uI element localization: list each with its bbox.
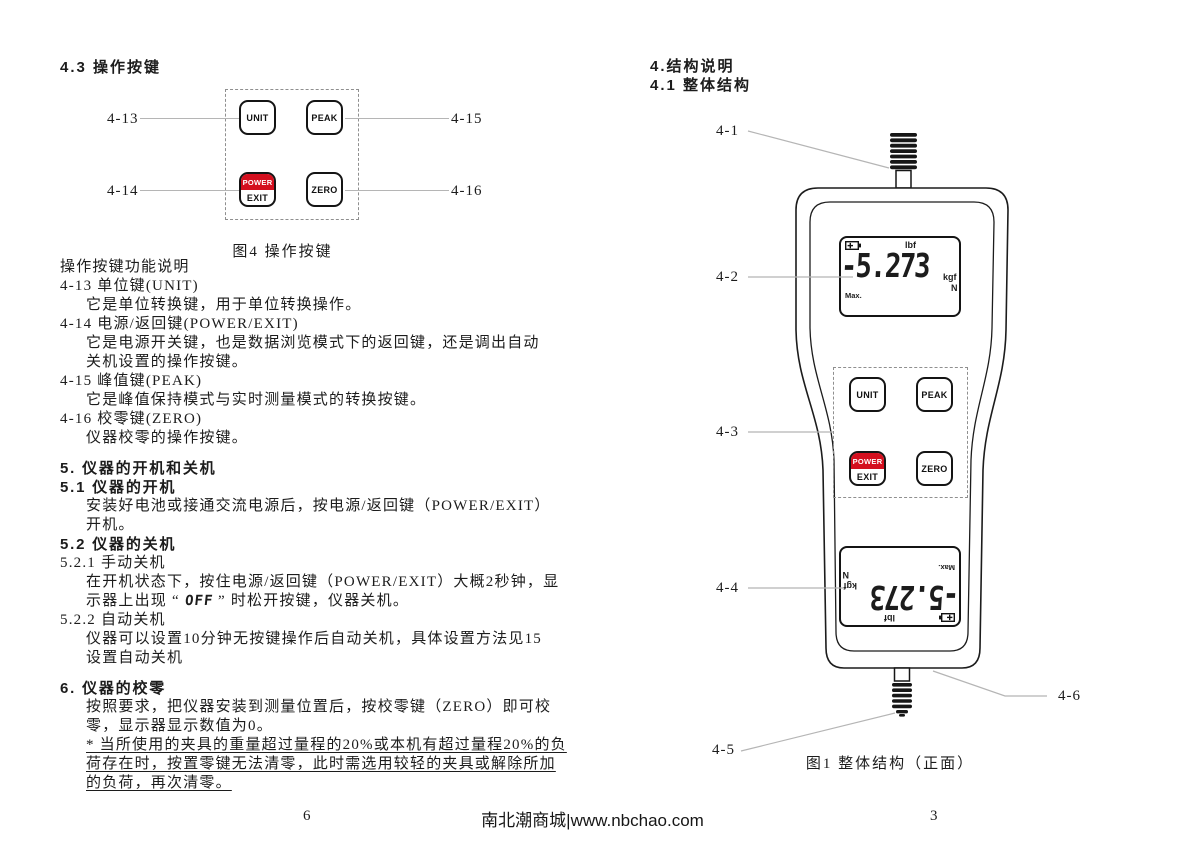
- warning-note-line: 的负荷，再次清零。: [60, 774, 580, 793]
- lcd-unit-n: N: [951, 283, 958, 293]
- section-6-heading: 6. 仪器的校零: [60, 679, 580, 698]
- text-line: 仪器可以设置10分钟无按键操作后自动关机，具体设置方法见15: [60, 630, 580, 649]
- text-segment: ” 时松开按键，仪器关机。: [213, 593, 409, 609]
- section-5-heading: 5. 仪器的开机和关机: [60, 459, 580, 478]
- figure4-peak-button: PEAK: [306, 100, 343, 135]
- text-line: 它是单位转换键，用于单位转换操作。: [60, 296, 580, 315]
- unit-button-label: UNIT: [856, 390, 878, 400]
- figure4-label-4-14: 4-14: [107, 183, 139, 200]
- text-line: 在开机状态下，按住电源/返回键（POWER/EXIT）大概2秒钟，显: [60, 573, 580, 592]
- zero-button-label: ZERO: [921, 464, 947, 474]
- section-4-1-heading: 4.1 整体结构: [650, 74, 751, 95]
- leader-line-4-15: [345, 118, 449, 119]
- warning-note-line: * 当所使用的夹具的重量超过量程的20%或本机有超过量程20%的负: [60, 736, 580, 755]
- lcd-unit-n: N: [843, 570, 850, 580]
- device-power-exit-button: POWER EXIT: [849, 451, 886, 486]
- exit-button-label: EXIT: [241, 190, 274, 205]
- text-line: 它是电源开关键，也是数据浏览模式下的返回键，还是调出自动: [60, 334, 580, 353]
- section-5-2-2-heading: 5.2.2 自动关机: [60, 611, 580, 630]
- leader-line-4-14: [140, 190, 239, 191]
- text-line: 操作按键功能说明: [60, 258, 580, 277]
- text-line: 零，显示器显示数值为0。: [60, 717, 580, 736]
- unit-button-label: UNIT: [246, 113, 268, 123]
- footer-site-text: 南北潮商城|www.nbchao.com: [0, 806, 1185, 831]
- lcd-value: -5.273: [840, 248, 927, 284]
- power-button-label: POWER: [241, 174, 274, 190]
- lcd-max-label: Max.: [938, 563, 955, 572]
- text-line: 设置自动关机: [60, 649, 580, 668]
- lcd-unit-kgf: kgf: [844, 581, 858, 591]
- text-segment: 示器上出现 “: [86, 593, 185, 609]
- page-number-right: 3: [930, 808, 938, 825]
- text-line: 4-15 峰值键(PEAK): [60, 372, 580, 391]
- section-4-heading: 4.结构说明: [650, 55, 735, 76]
- device-zero-button: ZERO: [916, 451, 953, 486]
- exit-button-label: EXIT: [851, 469, 884, 484]
- figure4-label-4-16: 4-16: [451, 183, 483, 200]
- text-line: 开机。: [60, 516, 580, 535]
- text-line: 关机设置的操作按键。: [60, 353, 580, 372]
- top-thread-shaft: [890, 133, 917, 188]
- leader-line-4-16: [345, 190, 449, 191]
- spacer: [60, 668, 580, 679]
- leader-line-4-13: [140, 118, 239, 119]
- text-line: 按照要求，把仪器安装到测量位置后，按校零键（ZERO）即可校: [60, 698, 580, 717]
- text-line: 它是峰值保持模式与实时测量模式的转换按键。: [60, 391, 580, 410]
- peak-button-label: PEAK: [311, 113, 337, 123]
- section-5-2-heading: 5.2 仪器的关机: [60, 535, 580, 554]
- zero-button-label: ZERO: [311, 185, 337, 195]
- lcd-display-back-inverted: lbf -5.273 kgf N Max.: [839, 546, 961, 627]
- figure4-label-4-13: 4-13: [107, 111, 139, 128]
- lcd-off-text: OFF: [184, 592, 214, 611]
- bottom-thread-shaft: [892, 668, 912, 717]
- text-line: 安装好电池或接通交流电源后，按电源/返回键（POWER/EXIT）: [60, 497, 580, 516]
- manual-spread: 4.3 操作按键 UNIT PEAK POWER EXIT ZERO 4-13 …: [0, 0, 1200, 848]
- peak-button-label: PEAK: [921, 390, 947, 400]
- text-line-with-lcd: 示器上出现 “ OFF ” 时松开按键，仪器关机。: [60, 592, 580, 611]
- left-page-text-column: 操作按键功能说明 4-13 单位键(UNIT) 它是单位转换键，用于单位转换操作…: [60, 258, 580, 793]
- text-line: 4-14 电源/返回键(POWER/EXIT): [60, 315, 580, 334]
- lcd-value: -5.273: [873, 579, 960, 615]
- section-5-1-heading: 5.1 仪器的开机: [60, 478, 580, 497]
- figure4-label-4-15: 4-15: [451, 111, 483, 128]
- power-button-label: POWER: [851, 453, 884, 469]
- device-peak-button: PEAK: [916, 377, 953, 412]
- text-line: 4-16 校零键(ZERO): [60, 410, 580, 429]
- lcd-unit-kgf: kgf: [943, 272, 957, 282]
- figure4-power-exit-button: POWER EXIT: [239, 172, 276, 207]
- lcd-max-label: Max.: [845, 291, 862, 300]
- figure4-zero-button: ZERO: [306, 172, 343, 207]
- lcd-display-front: lbf -5.273 kgf N Max.: [839, 236, 961, 317]
- device-unit-button: UNIT: [849, 377, 886, 412]
- section-4-3-heading: 4.3 操作按键: [60, 56, 161, 77]
- spacer: [60, 448, 580, 459]
- figure4-unit-button: UNIT: [239, 100, 276, 135]
- section-5-2-1-heading: 5.2.1 手动关机: [60, 554, 580, 573]
- warning-note-line: 荷存在时，按置零键无法清零，此时需选用较轻的夹具或解除所加: [60, 755, 580, 774]
- text-line: 仪器校零的操作按键。: [60, 429, 580, 448]
- text-line: 4-13 单位键(UNIT): [60, 277, 580, 296]
